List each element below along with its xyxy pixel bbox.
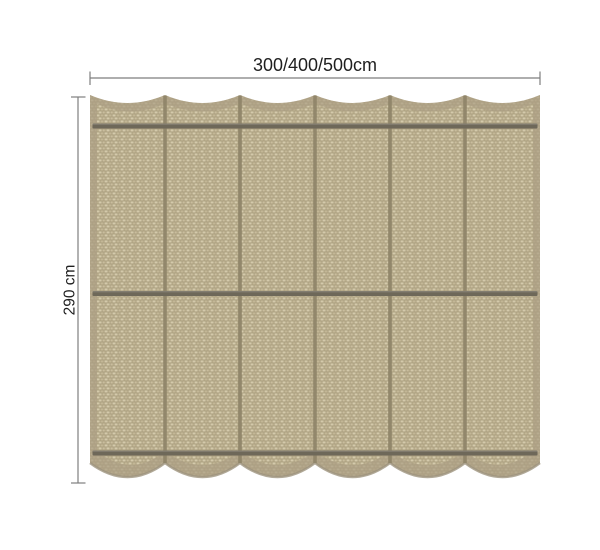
bottom-rod-highlight bbox=[93, 451, 538, 452]
top-rod-highlight bbox=[93, 124, 538, 125]
panel-divider bbox=[313, 96, 317, 464]
width-dimension: 300/400/500cm bbox=[90, 55, 540, 85]
panel-divider bbox=[163, 96, 167, 464]
panel-divider bbox=[388, 96, 392, 464]
shade-cloth bbox=[90, 95, 540, 477]
height-dimension-label: 290 cm bbox=[62, 265, 79, 316]
height-dimension: 290 cm bbox=[62, 97, 86, 483]
middle-rod-highlight bbox=[93, 291, 538, 292]
product-diagram: 300/400/500cm 290 cm bbox=[0, 0, 600, 550]
panel-divider bbox=[463, 96, 467, 464]
panel-divider bbox=[238, 96, 242, 464]
width-dimension-label: 300/400/500cm bbox=[253, 55, 377, 75]
shade-sail-diagram: 300/400/500cm 290 cm bbox=[0, 0, 600, 550]
